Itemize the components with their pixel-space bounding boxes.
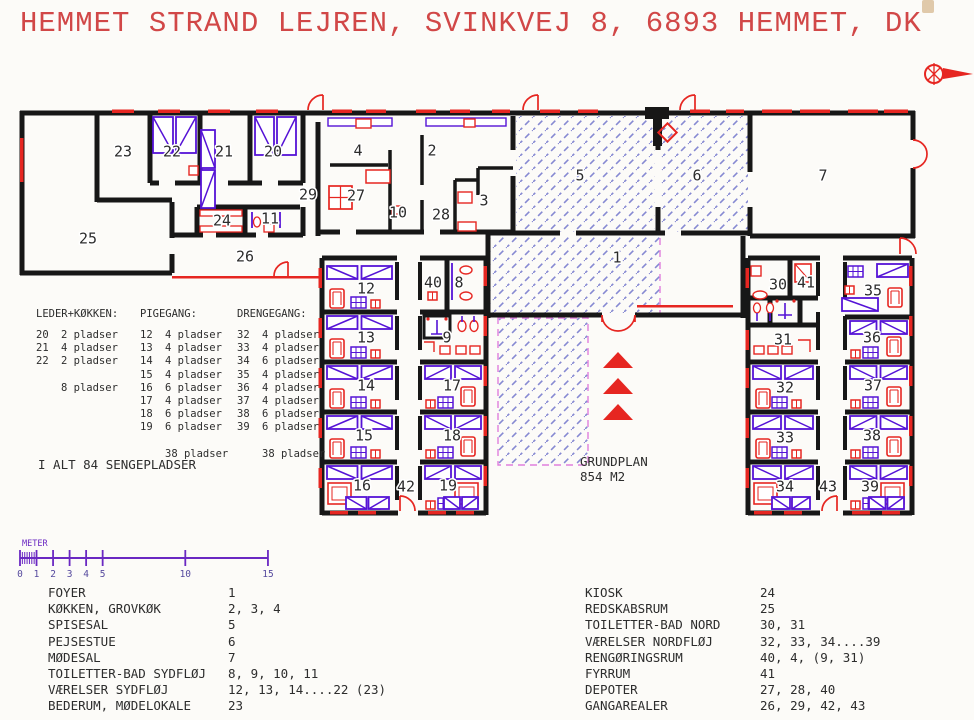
room-index-right: KIOSK24REDSKABSRUM25TOILETTER-BAD NORD30… bbox=[585, 585, 880, 715]
room-index-row: VÆRELSER NORDFLØJ32, 33, 34....39 bbox=[585, 634, 880, 650]
fire-equipment-icon bbox=[189, 166, 198, 175]
room-number: 33 bbox=[237, 342, 257, 355]
room-label-7: 7 bbox=[818, 167, 827, 185]
red-triangle bbox=[603, 352, 633, 368]
sink-icon bbox=[456, 346, 466, 354]
room-label-38: 38 bbox=[863, 427, 881, 445]
capacity-row: 374 pladser bbox=[237, 395, 347, 408]
worktable-icon bbox=[366, 170, 390, 183]
room-index-row: REDSKABSRUM25 bbox=[585, 601, 880, 617]
capacity-row: 186 pladser bbox=[140, 408, 237, 421]
capacity-column-header: PIGEGANG: bbox=[140, 308, 237, 321]
room-label-43: 43 bbox=[819, 478, 837, 496]
beds-count: 4 pladser bbox=[165, 355, 222, 367]
beds-count: 4 pladser bbox=[262, 329, 319, 341]
room-name: BEDERUM, MØDELOKALE bbox=[48, 698, 228, 714]
room-label-3: 3 bbox=[479, 192, 488, 210]
room-name: RENGØRINGSRUM bbox=[585, 650, 760, 666]
room-label-31: 31 bbox=[774, 331, 792, 349]
room-label-5: 5 bbox=[575, 167, 584, 185]
capacity-row: 166 pladser bbox=[140, 382, 237, 395]
window-mark bbox=[20, 138, 24, 182]
beds-count: 6 pladser bbox=[262, 408, 319, 420]
window-mark bbox=[112, 110, 134, 114]
grundplan-area: 854 M2 bbox=[580, 469, 648, 484]
room-index-row: DEPOTER27, 28, 40 bbox=[585, 682, 880, 698]
window-mark bbox=[762, 110, 792, 114]
capacity-row: 144 pladser bbox=[140, 355, 237, 368]
scanned-floor-plan-page: { "title": "HEMMET STRAND LEJREN, SVINKV… bbox=[0, 0, 974, 720]
room-index-row: KØKKEN, GROVKØK2, 3, 4 bbox=[48, 601, 386, 617]
room-numbers: 6 bbox=[228, 634, 236, 649]
toilet-icon bbox=[767, 303, 774, 313]
window-mark bbox=[319, 468, 323, 488]
room-index-left: FOYER1KØKKEN, GROVKØK2, 3, 4SPISESAL5PEJ… bbox=[48, 585, 386, 715]
room-label-1: 1 bbox=[612, 249, 621, 267]
capacity-row: 346 pladser bbox=[237, 355, 347, 368]
beds-count: 4 pladser bbox=[165, 395, 222, 407]
window-mark bbox=[884, 110, 908, 114]
fixture-box bbox=[458, 222, 476, 231]
room-label-4: 4 bbox=[353, 142, 362, 160]
room-number: 35 bbox=[237, 369, 257, 382]
window-mark bbox=[848, 110, 878, 114]
scale-tick-label: 10 bbox=[180, 569, 192, 580]
beds-count: 4 pladser bbox=[165, 342, 222, 354]
scale-unit-label: METER bbox=[22, 539, 48, 549]
room-number: 38 bbox=[237, 408, 257, 421]
room-number: 12 bbox=[140, 329, 160, 342]
window-mark bbox=[450, 110, 470, 114]
wall bbox=[818, 262, 845, 500]
sink-icon bbox=[440, 346, 450, 354]
window-mark bbox=[172, 276, 319, 279]
room-numbers: 27, 28, 40 bbox=[760, 682, 835, 697]
room-label-12: 12 bbox=[357, 280, 375, 298]
room-index-row: MØDESAL7 bbox=[48, 650, 386, 666]
escape-route-triangles bbox=[603, 352, 633, 420]
window-mark bbox=[366, 110, 386, 114]
window-mark bbox=[746, 418, 750, 438]
sink-icon bbox=[470, 346, 480, 354]
capacity-row: 386 pladser bbox=[237, 408, 347, 421]
window-mark bbox=[332, 110, 352, 114]
room-number: 37 bbox=[237, 395, 257, 408]
window-mark bbox=[637, 305, 733, 308]
room-number: 21 bbox=[36, 342, 56, 355]
room-number: 13 bbox=[140, 342, 160, 355]
room-label-32: 32 bbox=[776, 379, 794, 397]
room-numbers: 1 bbox=[228, 585, 236, 600]
room-label-40: 40 bbox=[424, 274, 442, 292]
capacity-row bbox=[140, 435, 237, 448]
room-label-26: 26 bbox=[236, 248, 254, 266]
sink-oval bbox=[753, 291, 767, 299]
room-numbers: 5 bbox=[228, 617, 236, 632]
room-numbers: 23 bbox=[228, 698, 243, 713]
capacity-column: PIGEGANG:124 pladser134 pladser144 plads… bbox=[140, 308, 237, 461]
room-number: 32 bbox=[237, 329, 257, 342]
room-label-37: 37 bbox=[864, 377, 882, 395]
window-mark bbox=[754, 511, 772, 515]
room-number: 20 bbox=[36, 329, 56, 342]
room-label-15: 15 bbox=[355, 427, 373, 445]
capacity-row: 324 pladser bbox=[237, 329, 347, 342]
grundplan-label: GRUNDPLAN bbox=[580, 454, 648, 469]
hatched-area bbox=[516, 116, 655, 232]
capacity-column: LEDER+KØKKEN:202 pladser214 pladser222 p… bbox=[36, 308, 140, 461]
scale-tick-label: 2 bbox=[50, 569, 56, 580]
room-name: FOYER bbox=[48, 585, 228, 601]
beds-count: 8 pladser bbox=[61, 382, 118, 394]
beds-count: 4 pladser bbox=[262, 395, 319, 407]
capacity-column: DRENGEGANG:324 pladser334 pladser346 pla… bbox=[237, 308, 347, 461]
beds-count: 6 pladser bbox=[165, 382, 222, 394]
room-label-2: 2 bbox=[427, 142, 436, 160]
hatched-area bbox=[490, 236, 660, 313]
room-number: 39 bbox=[237, 421, 257, 434]
fixture-dot bbox=[426, 317, 429, 320]
counter-appliance bbox=[464, 119, 475, 127]
room-number: 22 bbox=[36, 355, 56, 368]
capacity-column-header: DRENGEGANG: bbox=[237, 308, 347, 321]
room-label-13: 13 bbox=[357, 329, 375, 347]
scale-tick-label: 3 bbox=[67, 569, 73, 580]
room-name: REDSKABSRUM bbox=[585, 601, 760, 617]
room-label-10: 10 bbox=[389, 204, 407, 222]
corner-shelf bbox=[424, 342, 434, 352]
door-arc bbox=[913, 140, 927, 168]
room-label-9: 9 bbox=[442, 329, 451, 347]
room-label-41: 41 bbox=[797, 274, 815, 292]
beds-count: 6 pladser bbox=[165, 408, 222, 420]
room-name: MØDESAL bbox=[48, 650, 228, 666]
north-compass bbox=[925, 63, 973, 85]
capacity-row: 334 pladser bbox=[237, 342, 347, 355]
room-number: 34 bbox=[237, 355, 257, 368]
window-mark bbox=[909, 316, 913, 336]
window-mark bbox=[909, 266, 913, 286]
room-numbers: 40, 4, (9, 31) bbox=[760, 650, 865, 665]
window-mark bbox=[909, 466, 913, 486]
room-numbers: 26, 29, 42, 43 bbox=[760, 698, 865, 713]
window-mark bbox=[540, 110, 560, 114]
room-numbers: 8, 9, 10, 11 bbox=[228, 666, 318, 681]
room-name: VÆRELSER NORDFLØJ bbox=[585, 634, 760, 650]
counter-appliance bbox=[356, 119, 371, 128]
beds-count: 6 pladser bbox=[165, 421, 222, 433]
room-label-30: 30 bbox=[769, 276, 787, 294]
window-mark bbox=[208, 110, 230, 114]
window-mark bbox=[726, 110, 744, 114]
door-arc bbox=[523, 95, 538, 110]
scale-tick-label: 1 bbox=[34, 569, 40, 580]
room-label-29: 29 bbox=[299, 186, 317, 204]
window-mark bbox=[882, 511, 900, 515]
window-mark bbox=[746, 330, 750, 350]
window-mark bbox=[690, 110, 710, 114]
scale-tick-label: 0 bbox=[17, 569, 23, 580]
door-arc bbox=[274, 262, 288, 276]
capacity-row: 154 pladser bbox=[140, 369, 237, 382]
capacity-row: 174 pladser bbox=[140, 395, 237, 408]
fixture-dot bbox=[444, 317, 447, 320]
window-mark bbox=[909, 366, 913, 386]
room-label-35: 35 bbox=[864, 282, 882, 300]
room-index-row: FOYER1 bbox=[48, 585, 386, 601]
scale-tick-label: 15 bbox=[262, 569, 273, 580]
capacity-table: LEDER+KØKKEN:202 pladser214 pladser222 p… bbox=[36, 308, 347, 461]
beds-count: 4 pladser bbox=[262, 369, 319, 381]
room-numbers: 7 bbox=[228, 650, 236, 665]
sink-icon bbox=[754, 346, 764, 354]
room-label-25: 25 bbox=[79, 230, 97, 248]
beds-count: 38 pladser bbox=[262, 448, 325, 460]
window-mark bbox=[416, 110, 436, 114]
window-mark bbox=[330, 511, 348, 515]
window-mark bbox=[358, 511, 376, 515]
room-label-22: 22 bbox=[163, 143, 181, 161]
capacity-row bbox=[36, 369, 140, 382]
room-index-row: SPISESAL5 bbox=[48, 617, 386, 633]
door-arc bbox=[900, 238, 916, 254]
window-mark bbox=[484, 416, 488, 436]
window-mark bbox=[746, 368, 750, 388]
room-label-19: 19 bbox=[439, 477, 457, 495]
capacity-row: 396 pladser bbox=[237, 421, 347, 434]
door-arc bbox=[602, 315, 635, 331]
door-arc bbox=[400, 496, 415, 511]
scale-tick-label: 5 bbox=[100, 569, 106, 580]
capacity-row bbox=[237, 435, 347, 448]
room-numbers: 41 bbox=[760, 666, 775, 681]
room-name: VÆRELSER SYDFLØJ bbox=[48, 682, 228, 698]
scale-bar: 0123451015METER bbox=[17, 539, 274, 580]
room-index-row: TOILETTER-BAD SYDFLØJ8, 9, 10, 11 bbox=[48, 666, 386, 682]
beds-count: 4 pladser bbox=[165, 329, 222, 341]
room-label-28: 28 bbox=[432, 206, 450, 224]
room-label-23: 23 bbox=[114, 143, 132, 161]
capacity-row: 202 pladser bbox=[36, 329, 140, 342]
room-label-16: 16 bbox=[353, 477, 371, 495]
room-name: PEJSESTUE bbox=[48, 634, 228, 650]
room-label-24: 24 bbox=[213, 212, 231, 230]
room-name: TOILETTER-BAD NORD bbox=[585, 617, 760, 633]
room-number: 17 bbox=[140, 395, 160, 408]
beds-count: 2 pladser bbox=[61, 355, 118, 367]
room-label-11: 11 bbox=[261, 210, 279, 228]
room-numbers: 24 bbox=[760, 585, 775, 600]
toilet-icon bbox=[470, 321, 478, 332]
capacity-row: 222 pladser bbox=[36, 355, 140, 368]
door-arc bbox=[680, 95, 695, 110]
room-index-row: KIOSK24 bbox=[585, 585, 880, 601]
window-mark bbox=[800, 110, 830, 114]
room-label-6: 6 bbox=[692, 167, 701, 185]
corner-shelf bbox=[798, 340, 810, 352]
capacity-row: 364 pladser bbox=[237, 382, 347, 395]
window-mark bbox=[784, 511, 802, 515]
room-label-33: 33 bbox=[776, 429, 794, 447]
room-label-21: 21 bbox=[215, 143, 233, 161]
capacity-column-header: LEDER+KØKKEN: bbox=[36, 308, 140, 321]
room-number: 18 bbox=[140, 408, 160, 421]
room-name: TOILETTER-BAD SYDFLØJ bbox=[48, 666, 228, 682]
window-mark bbox=[256, 110, 278, 114]
wall bbox=[397, 262, 420, 500]
room-label-39: 39 bbox=[861, 478, 879, 496]
room-numbers: 12, 13, 14....22 (23) bbox=[228, 682, 386, 697]
room-label-8: 8 bbox=[454, 274, 463, 292]
room-index-row: VÆRELSER SYDFLØJ12, 13, 14....22 (23) bbox=[48, 682, 386, 698]
room-name: KØKKEN, GROVKØK bbox=[48, 601, 228, 617]
room-numbers: 2, 3, 4 bbox=[228, 601, 281, 616]
room-name: GANGAREALER bbox=[585, 698, 760, 714]
chimney bbox=[645, 107, 669, 119]
window-mark bbox=[746, 268, 750, 288]
door-arc bbox=[822, 496, 837, 511]
beds-count: 4 pladser bbox=[262, 342, 319, 354]
capacity-row: 354 pladser bbox=[237, 369, 347, 382]
room-label-36: 36 bbox=[863, 329, 881, 347]
toilet-icon bbox=[754, 303, 761, 313]
capacity-row: 124 pladser bbox=[140, 329, 237, 342]
compass-pennant-icon bbox=[943, 68, 973, 79]
room-numbers: 25 bbox=[760, 601, 775, 616]
room-index-row: BEDERUM, MØDELOKALE23 bbox=[48, 698, 386, 714]
red-triangle bbox=[603, 404, 633, 420]
room-index-row: PEJSESTUE6 bbox=[48, 634, 386, 650]
room-numbers: 32, 33, 34....39 bbox=[760, 634, 880, 649]
room-index-row: GANGAREALER26, 29, 42, 43 bbox=[585, 698, 880, 714]
room-number: 14 bbox=[140, 355, 160, 368]
room-index-row: RENGØRINGSRUM40, 4, (9, 31) bbox=[585, 650, 880, 666]
window-mark bbox=[484, 366, 488, 386]
capacity-row: 38 pladser bbox=[237, 448, 347, 461]
beds-count: 6 pladser bbox=[262, 421, 319, 433]
window-mark bbox=[484, 316, 488, 336]
window-mark bbox=[428, 511, 446, 515]
window-mark bbox=[484, 266, 488, 286]
window-mark bbox=[319, 268, 323, 288]
beds-count: 4 pladser bbox=[262, 382, 319, 394]
window-mark bbox=[578, 110, 598, 114]
room-name: DEPOTER bbox=[585, 682, 760, 698]
window-mark bbox=[484, 466, 488, 486]
fixture-box bbox=[751, 266, 761, 276]
grundplan-note: GRUNDPLAN 854 M2 bbox=[580, 454, 648, 484]
room-number: 19 bbox=[140, 421, 160, 434]
window-mark bbox=[158, 110, 180, 114]
fixture-box bbox=[458, 192, 472, 203]
capacity-row: 196 pladser bbox=[140, 421, 237, 434]
beds-count: 4 pladser bbox=[61, 342, 118, 354]
window-mark bbox=[909, 416, 913, 436]
capacity-row: 8 pladser bbox=[36, 382, 140, 395]
hatched-area bbox=[498, 318, 588, 465]
shower-icon bbox=[778, 303, 792, 319]
room-name: KIOSK bbox=[585, 585, 760, 601]
room-number: 16 bbox=[140, 382, 160, 395]
room-number: 15 bbox=[140, 369, 160, 382]
red-triangle bbox=[603, 378, 633, 394]
room-index-row: TOILETTER-BAD NORD30, 31 bbox=[585, 617, 880, 633]
room-index-row: FYRRUM41 bbox=[585, 666, 880, 682]
hatched-area bbox=[661, 116, 748, 232]
window-mark bbox=[456, 511, 474, 515]
room-label-34: 34 bbox=[776, 478, 794, 496]
room-label-17: 17 bbox=[443, 377, 461, 395]
scale-tick-label: 4 bbox=[83, 569, 89, 580]
toilet-icon bbox=[254, 217, 261, 227]
room-label-14: 14 bbox=[357, 377, 375, 395]
window-mark bbox=[852, 511, 870, 515]
room-label-42: 42 bbox=[397, 478, 415, 496]
beds-count: 2 pladser bbox=[61, 329, 118, 341]
capacity-row: 134 pladser bbox=[140, 342, 237, 355]
total-beds-line: I ALT 84 SENGEPLADSER bbox=[38, 457, 196, 472]
toilet-icon bbox=[458, 321, 466, 332]
room-label-18: 18 bbox=[443, 427, 461, 445]
beds-count: 4 pladser bbox=[165, 369, 222, 381]
beds-count: 6 pladser bbox=[262, 355, 319, 367]
window-mark bbox=[746, 468, 750, 488]
room-label-27: 27 bbox=[347, 187, 365, 205]
room-label-20: 20 bbox=[264, 143, 282, 161]
capacity-row: 214 pladser bbox=[36, 342, 140, 355]
room-number: 36 bbox=[237, 382, 257, 395]
room-name: FYRRUM bbox=[585, 666, 760, 682]
fixture-dot bbox=[792, 299, 795, 302]
door-arc bbox=[308, 95, 323, 110]
window-mark bbox=[492, 110, 510, 114]
room-numbers: 30, 31 bbox=[760, 617, 805, 632]
sink-oval bbox=[460, 292, 472, 300]
fixture-dot bbox=[775, 299, 778, 302]
room-name: SPISESAL bbox=[48, 617, 228, 633]
